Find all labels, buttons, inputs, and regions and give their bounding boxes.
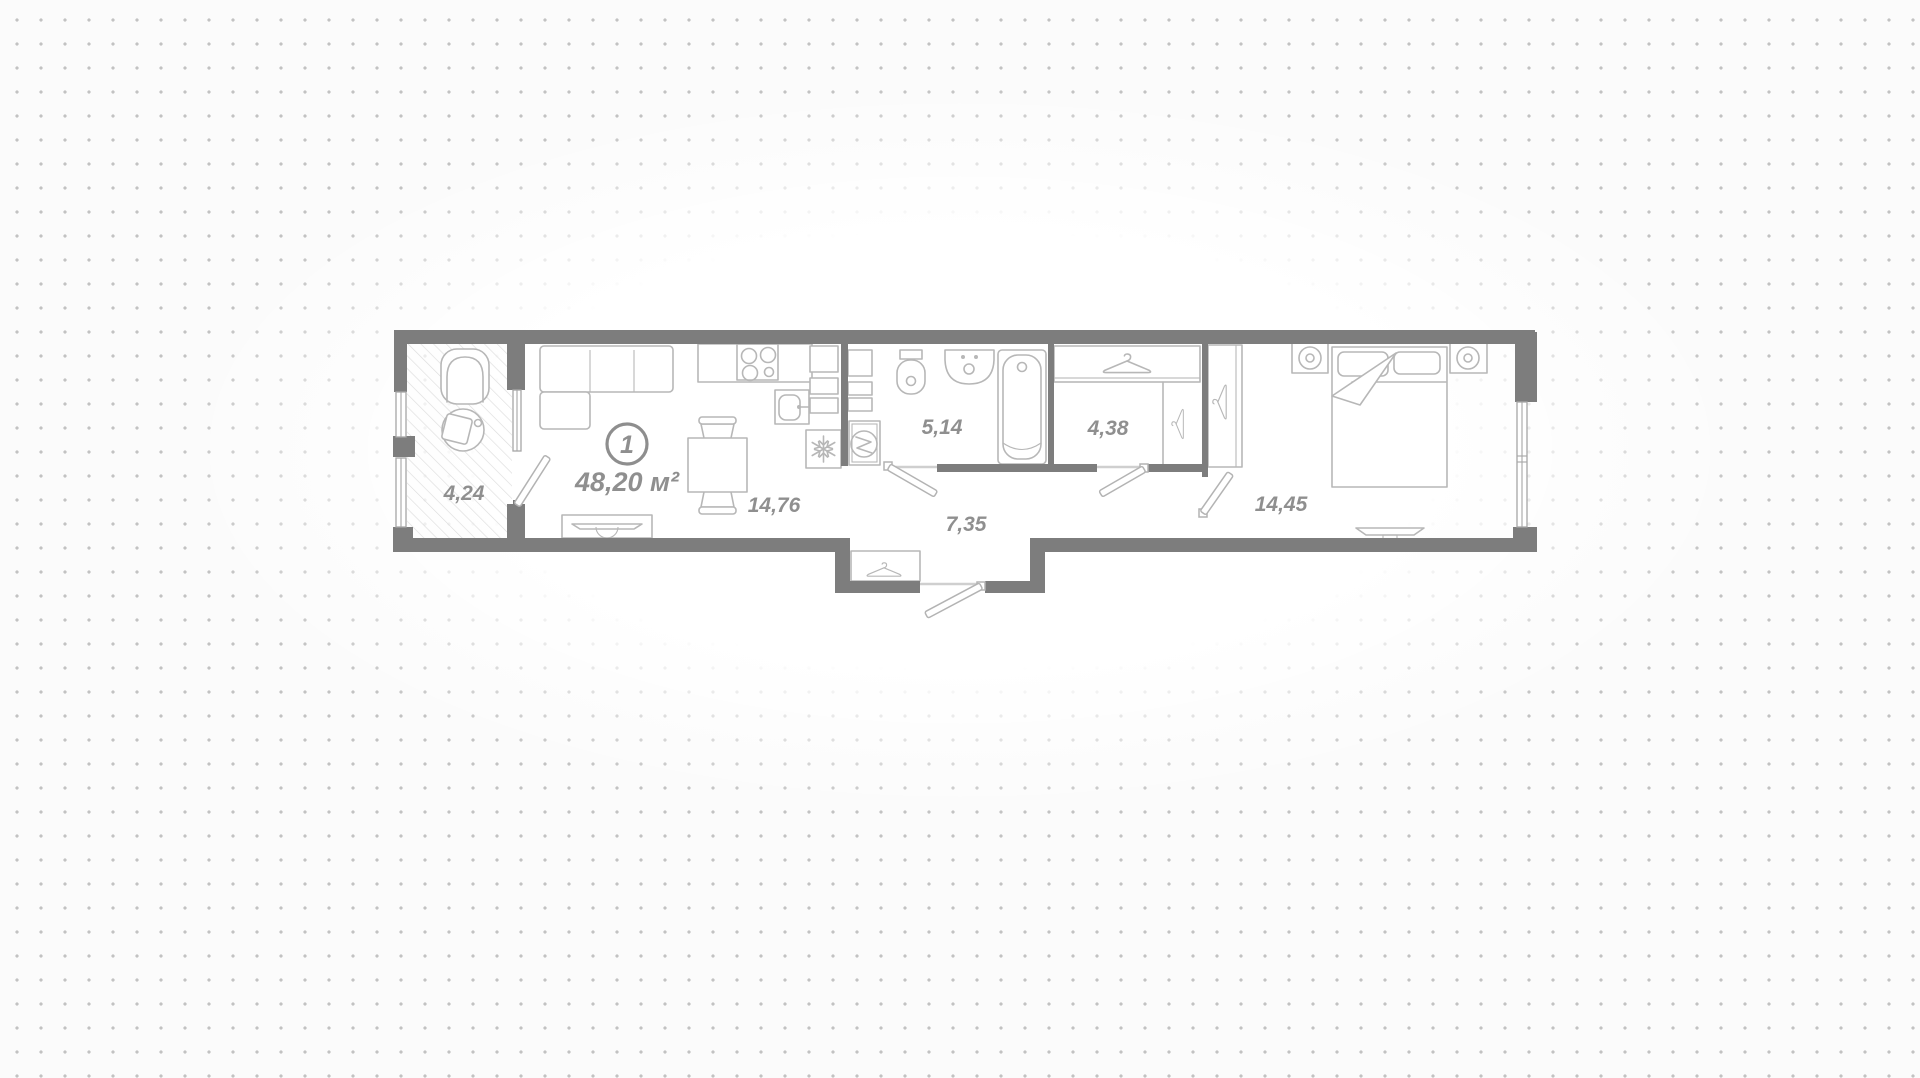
wall-pier — [393, 436, 415, 457]
kitchen-counter-icon — [698, 344, 812, 382]
balcony-window — [396, 392, 406, 437]
hallway-area-label: 7,35 — [946, 513, 987, 536]
washbasin-icon — [945, 350, 994, 384]
balcony-area-label: 4,24 — [443, 482, 485, 505]
bathroom-wall — [1048, 344, 1054, 472]
balcony-table-icon — [441, 409, 484, 451]
floor-plan: 1 48,20 м² 4,24 14,76 5,14 7,35 4,38 14,… — [0, 0, 1920, 1078]
bedroom-window — [1517, 402, 1527, 527]
fridge-icon — [806, 430, 841, 468]
wall-segment — [394, 330, 407, 392]
wall-segment — [835, 581, 920, 593]
bedroom-area-label: 14,45 — [1255, 493, 1308, 516]
wall-segment — [1513, 527, 1537, 552]
kitchen-sink-icon — [775, 390, 809, 424]
balcony-glazed-door — [513, 390, 521, 451]
wardrobe-door-icon — [1099, 464, 1148, 497]
kitchen-living-area-label: 14,76 — [748, 494, 801, 517]
toilet-icon — [897, 350, 925, 394]
balcony-partition-wall — [507, 344, 525, 390]
sofa-icon — [540, 346, 673, 429]
nightstand-icon — [1450, 343, 1487, 373]
balcony-partition-pier — [507, 504, 525, 540]
bathroom-wall — [841, 344, 848, 466]
wardrobe-wall — [1054, 464, 1097, 472]
bedroom-window-sill — [1356, 528, 1424, 539]
screenshot-canvas: 1 48,20 м² 4,24 14,76 5,14 7,35 4,38 14,… — [0, 0, 1920, 1078]
balcony-window — [396, 458, 406, 527]
bathtub-icon — [998, 350, 1046, 464]
armchair-icon — [441, 349, 489, 404]
kitchen-cabinets-icon — [810, 346, 838, 413]
wall-segment — [1030, 538, 1045, 593]
entrance-door-icon — [925, 582, 985, 618]
balcony-door-icon — [513, 455, 551, 509]
bedroom-door-icon — [1199, 472, 1233, 517]
balcony — [407, 344, 512, 538]
tv-stand-icon — [562, 515, 652, 538]
wall-segment — [1045, 538, 1515, 552]
dining-table-icon — [688, 417, 747, 514]
nightstand-icon — [1292, 343, 1328, 373]
bathroom — [848, 350, 1046, 465]
wardrobe-area-label: 4,38 — [1087, 417, 1129, 440]
bathroom-shelves-icon — [848, 350, 872, 411]
bathroom-wall — [937, 464, 1054, 472]
wall-segment — [394, 330, 1535, 344]
unit-number: 1 — [620, 431, 634, 459]
hanger-icon — [1172, 409, 1184, 438]
bedroom-wall — [1202, 344, 1208, 477]
total-area-label: 48,20 м² — [574, 467, 680, 497]
washing-machine-icon — [849, 421, 880, 465]
wardrobe — [1054, 346, 1200, 464]
wall-segment — [1515, 332, 1537, 402]
wardrobe-wall — [1143, 464, 1208, 472]
bathroom-area-label: 5,14 — [922, 416, 963, 439]
wall-segment — [394, 538, 850, 552]
bedroom — [1292, 343, 1487, 539]
wardrobe-shelf — [1054, 346, 1200, 382]
bed-icon — [1332, 347, 1447, 487]
hall-closet-icon — [1208, 345, 1242, 467]
